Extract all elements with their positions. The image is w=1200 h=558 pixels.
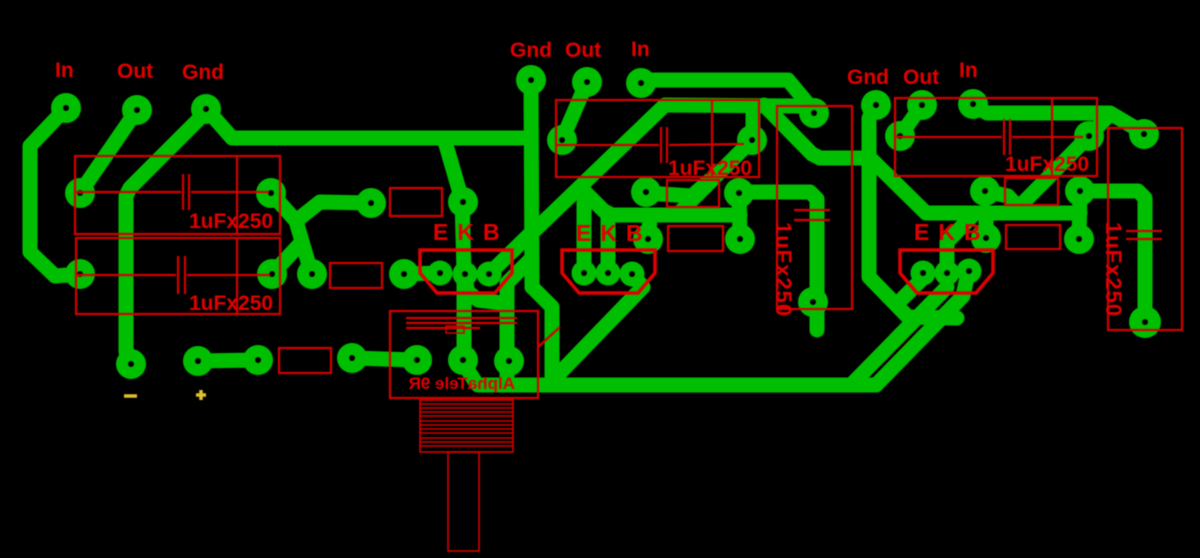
svg-text:EKB: EKB	[914, 219, 990, 245]
svg-text:1uFx250: 1uFx250	[771, 222, 796, 317]
svg-text:In: In	[631, 38, 650, 61]
svg-text:1uFx250: 1uFx250	[189, 292, 273, 315]
svg-text:In: In	[959, 59, 978, 82]
svg-text:Out: Out	[117, 60, 153, 83]
svg-text:Gnd: Gnd	[510, 39, 552, 62]
svg-text:AlphaTele 9R: AlphaTele 9R	[409, 374, 515, 393]
svg-text:1uFx250: 1uFx250	[1005, 153, 1089, 176]
svg-text:Out: Out	[565, 39, 601, 62]
svg-text:1uFx250: 1uFx250	[189, 210, 273, 233]
svg-text:Gnd: Gnd	[847, 66, 889, 89]
svg-text:In: In	[55, 59, 74, 82]
svg-text:Gnd: Gnd	[182, 61, 224, 84]
svg-text:1uFx250: 1uFx250	[668, 157, 752, 180]
svg-text:1uFx250: 1uFx250	[1101, 222, 1126, 317]
svg-text:EKB: EKB	[576, 220, 652, 246]
svg-text:EKB: EKB	[433, 219, 509, 245]
svg-text:Out: Out	[903, 66, 939, 89]
